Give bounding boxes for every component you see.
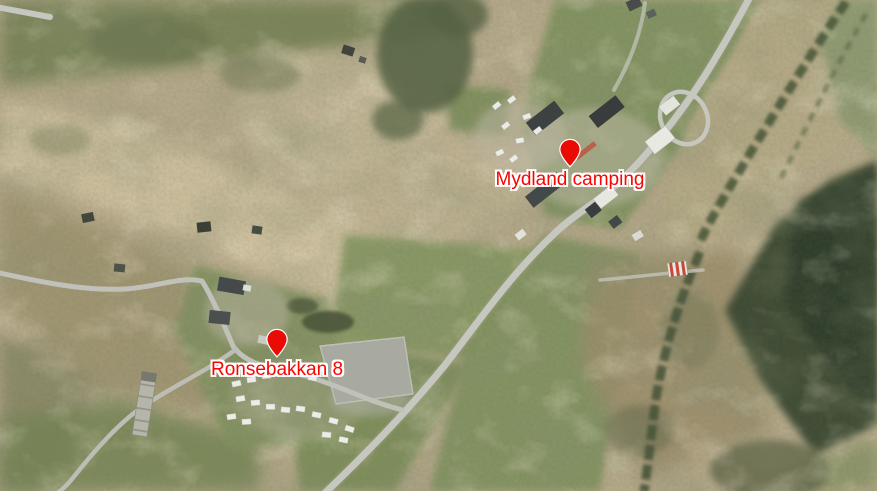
location-pin-icon[interactable] [265, 328, 289, 358]
marker-label: Mydland camping [496, 170, 645, 190]
location-pin-icon[interactable] [558, 138, 582, 168]
haze-overlay [0, 0, 877, 491]
map-viewport[interactable]: Mydland camping Ronsebakkan 8 [0, 0, 877, 491]
marker-label: Ronsebakkan 8 [211, 360, 343, 380]
aerial-imagery [0, 0, 877, 491]
